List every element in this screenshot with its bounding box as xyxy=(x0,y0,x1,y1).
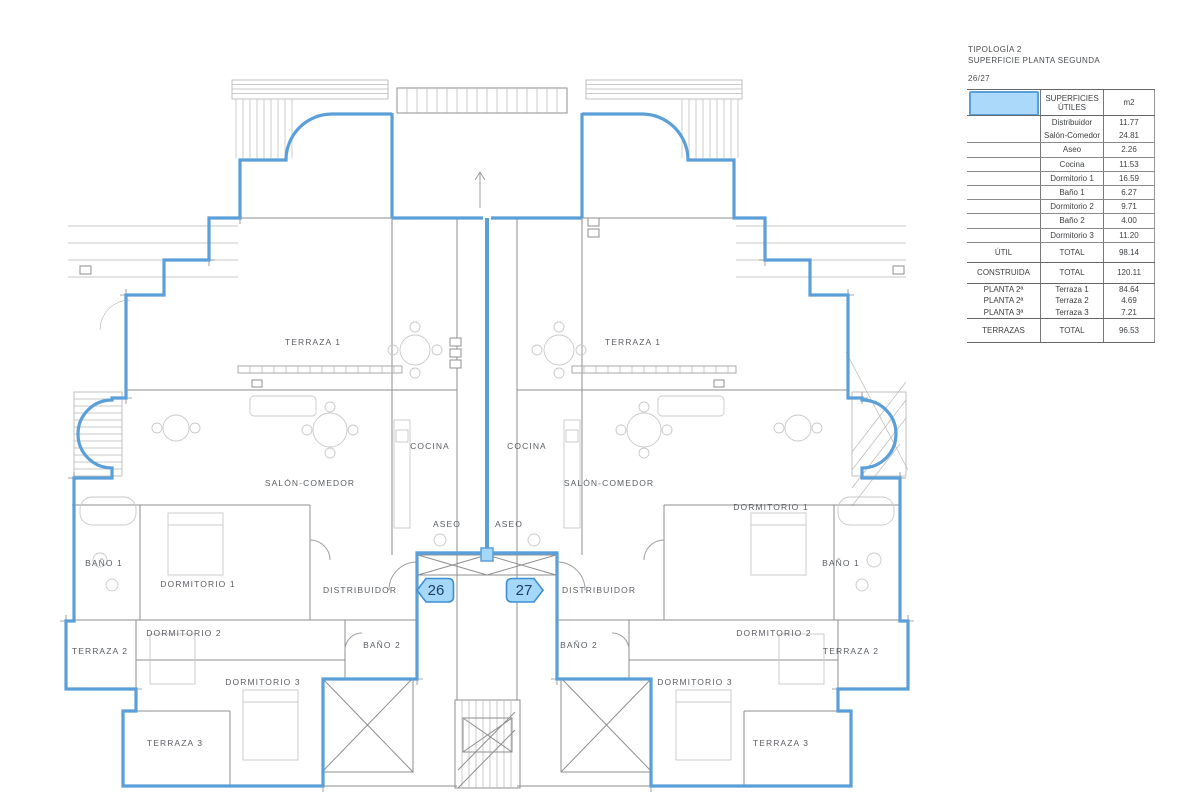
table-cell-label: Salón-Comedor xyxy=(1040,129,1104,142)
room-label-distribuidor: DISTRIBUIDOR xyxy=(323,585,397,595)
unit-outline-blue xyxy=(66,113,908,786)
table-cell-label: Cocina xyxy=(1040,158,1104,171)
table-row: Distribuidor11.77 xyxy=(967,116,1155,129)
util-total-row: ÚTIL TOTAL 98.14 xyxy=(967,243,1155,263)
table-row: Baño 16.27 xyxy=(967,186,1155,200)
sheet-header: TIPOLOGÍA 2 SUPERFICIE PLANTA SEGUNDA xyxy=(968,44,1100,66)
table-cell-label: Terraza 1 xyxy=(1040,284,1104,295)
room-label-ba-o-1: BAÑO 1 xyxy=(85,558,123,568)
total-value: 120.11 xyxy=(1104,263,1155,283)
table-cell-value: 11.77 xyxy=(1104,116,1155,129)
table-cell-group xyxy=(967,172,1040,185)
rooms-rows: Distribuidor11.77Salón-Comedor24.81Aseo2… xyxy=(967,116,1155,243)
room-label-terraza-3: TERRAZA 3 xyxy=(147,738,203,748)
room-label-dormitorio-2: DORMITORIO 2 xyxy=(736,628,811,638)
table-row: Salón-Comedor24.81 xyxy=(967,129,1155,143)
room-label-sal-n-comedor: SALÓN-COMEDOR xyxy=(265,478,355,488)
room-label-dormitorio-3: DORMITORIO 3 xyxy=(225,677,300,687)
room-label-cocina: COCINA xyxy=(507,441,547,451)
table-row: PLANTA 3ªTerraza 37.21 xyxy=(967,306,1155,317)
table-cell-group xyxy=(967,214,1040,227)
room-label-aseo: ASEO xyxy=(433,519,461,529)
room-label-dormitorio-2: DORMITORIO 2 xyxy=(146,628,221,638)
table-row: Dormitorio 116.59 xyxy=(967,172,1155,186)
table-cell-group: PLANTA 3ª xyxy=(967,306,1040,317)
table-cell-label: Terraza 3 xyxy=(1040,306,1104,317)
room-label-ba-o-1: BAÑO 1 xyxy=(822,558,860,568)
room-label-cocina: COCINA xyxy=(410,441,450,451)
room-label-terraza-3: TERRAZA 3 xyxy=(753,738,809,748)
room-label-dormitorio-3: DORMITORIO 3 xyxy=(657,677,732,687)
total-group: ÚTIL xyxy=(967,243,1040,262)
table-header-row: SUPERFICIES ÚTILES m2 xyxy=(967,89,1155,116)
room-label-terraza-1: TERRAZA 1 xyxy=(285,337,341,347)
floor-plan-sheet: 26 27 TERRAZA 1TERRAZA 1COCINACOCINASALÓ… xyxy=(0,0,1200,805)
table-cell-value: 84.64 xyxy=(1104,284,1155,295)
table-cell-label: Dormitorio 2 xyxy=(1040,200,1104,213)
col-title-line2: ÚTILES xyxy=(1058,103,1086,112)
room-label-terraza-2: TERRAZA 2 xyxy=(72,646,128,656)
table-cell-value: 16.59 xyxy=(1104,172,1155,185)
units-reference: 26/27 xyxy=(968,74,990,83)
table-row: Aseo2.26 xyxy=(967,143,1155,157)
table-cell-value: 11.53 xyxy=(1104,158,1155,171)
table-cell-value: 4.00 xyxy=(1104,214,1155,227)
table-cell-group xyxy=(967,229,1040,242)
room-label-distribuidor: DISTRIBUIDOR xyxy=(562,585,636,595)
terrace-rows: PLANTA 2ªTerraza 184.64PLANTA 2ªTerraza … xyxy=(967,284,1155,318)
room-label-terraza-2: TERRAZA 2 xyxy=(823,646,879,656)
room-label-aseo: ASEO xyxy=(495,519,523,529)
table-cell-value: 9.71 xyxy=(1104,200,1155,213)
table-cell-group xyxy=(967,143,1040,156)
table-cell-label: Dormitorio 3 xyxy=(1040,229,1104,242)
total-value: 98.14 xyxy=(1104,243,1155,262)
room-label-sal-n-comedor: SALÓN-COMEDOR xyxy=(564,478,654,488)
table-cell-group: PLANTA 2ª xyxy=(967,295,1040,306)
table-cell-label: Baño 2 xyxy=(1040,214,1104,227)
total-label: TOTAL xyxy=(1040,319,1104,342)
room-label-terraza-1: TERRAZA 1 xyxy=(605,337,661,347)
table-cell-value: 2.26 xyxy=(1104,143,1155,156)
room-label-ba-o-2: BAÑO 2 xyxy=(560,640,598,650)
table-cell-label: Dormitorio 1 xyxy=(1040,172,1104,185)
total-group: TERRAZAS xyxy=(967,319,1040,342)
terraces-total-row: TERRAZAS TOTAL 96.53 xyxy=(967,318,1155,343)
sheet-subtitle: SUPERFICIE PLANTA SEGUNDA xyxy=(968,55,1100,66)
table-cell-group xyxy=(967,129,1040,142)
unit-badges: 26 27 xyxy=(417,579,543,603)
table-cell-group xyxy=(967,158,1040,171)
table-cell-label: Aseo xyxy=(1040,143,1104,156)
table-cell-value: 7.21 xyxy=(1104,306,1155,317)
area-table: SUPERFICIES ÚTILES m2 Distribuidor11.77S… xyxy=(967,89,1155,343)
legend-cell xyxy=(967,90,1040,115)
total-group: CONSTRUIDA xyxy=(967,263,1040,283)
room-label-ba-o-2: BAÑO 2 xyxy=(363,640,401,650)
total-label: TOTAL xyxy=(1040,263,1104,283)
table-cell-group xyxy=(967,186,1040,199)
table-cell-label: Terraza 2 xyxy=(1040,295,1104,306)
table-row: PLANTA 2ªTerraza 24.69 xyxy=(967,295,1155,306)
unit-header: m2 xyxy=(1104,90,1155,115)
table-cell-group xyxy=(967,200,1040,213)
column-title: SUPERFICIES ÚTILES xyxy=(1040,90,1104,115)
table-cell-value: 6.27 xyxy=(1104,186,1155,199)
built-total-row: CONSTRUIDA TOTAL 120.11 xyxy=(967,263,1155,284)
table-row: Dormitorio 29.71 xyxy=(967,200,1155,214)
total-label: TOTAL xyxy=(1040,243,1104,262)
table-cell-value: 11.20 xyxy=(1104,229,1155,242)
table-cell-value: 24.81 xyxy=(1104,129,1155,142)
table-cell-value: 4.69 xyxy=(1104,295,1155,306)
total-value: 96.53 xyxy=(1104,319,1155,342)
table-row: PLANTA 2ªTerraza 184.64 xyxy=(967,284,1155,295)
typology-title: TIPOLOGÍA 2 xyxy=(968,44,1100,55)
unit-27-number: 27 xyxy=(516,582,533,599)
table-cell-group: PLANTA 2ª xyxy=(967,284,1040,295)
table-cell-label: Distribuidor xyxy=(1040,116,1104,129)
table-row: Dormitorio 311.20 xyxy=(967,229,1155,243)
table-cell-label: Baño 1 xyxy=(1040,186,1104,199)
table-row: Cocina11.53 xyxy=(967,158,1155,172)
room-label-dormitorio-1: DORMITORIO 1 xyxy=(733,502,808,512)
unit-26-number: 26 xyxy=(428,582,445,599)
room-label-dormitorio-1: DORMITORIO 1 xyxy=(160,579,235,589)
table-row: Baño 24.00 xyxy=(967,214,1155,228)
table-cell-group xyxy=(967,116,1040,129)
col-title-line1: SUPERFICIES xyxy=(1045,94,1098,103)
